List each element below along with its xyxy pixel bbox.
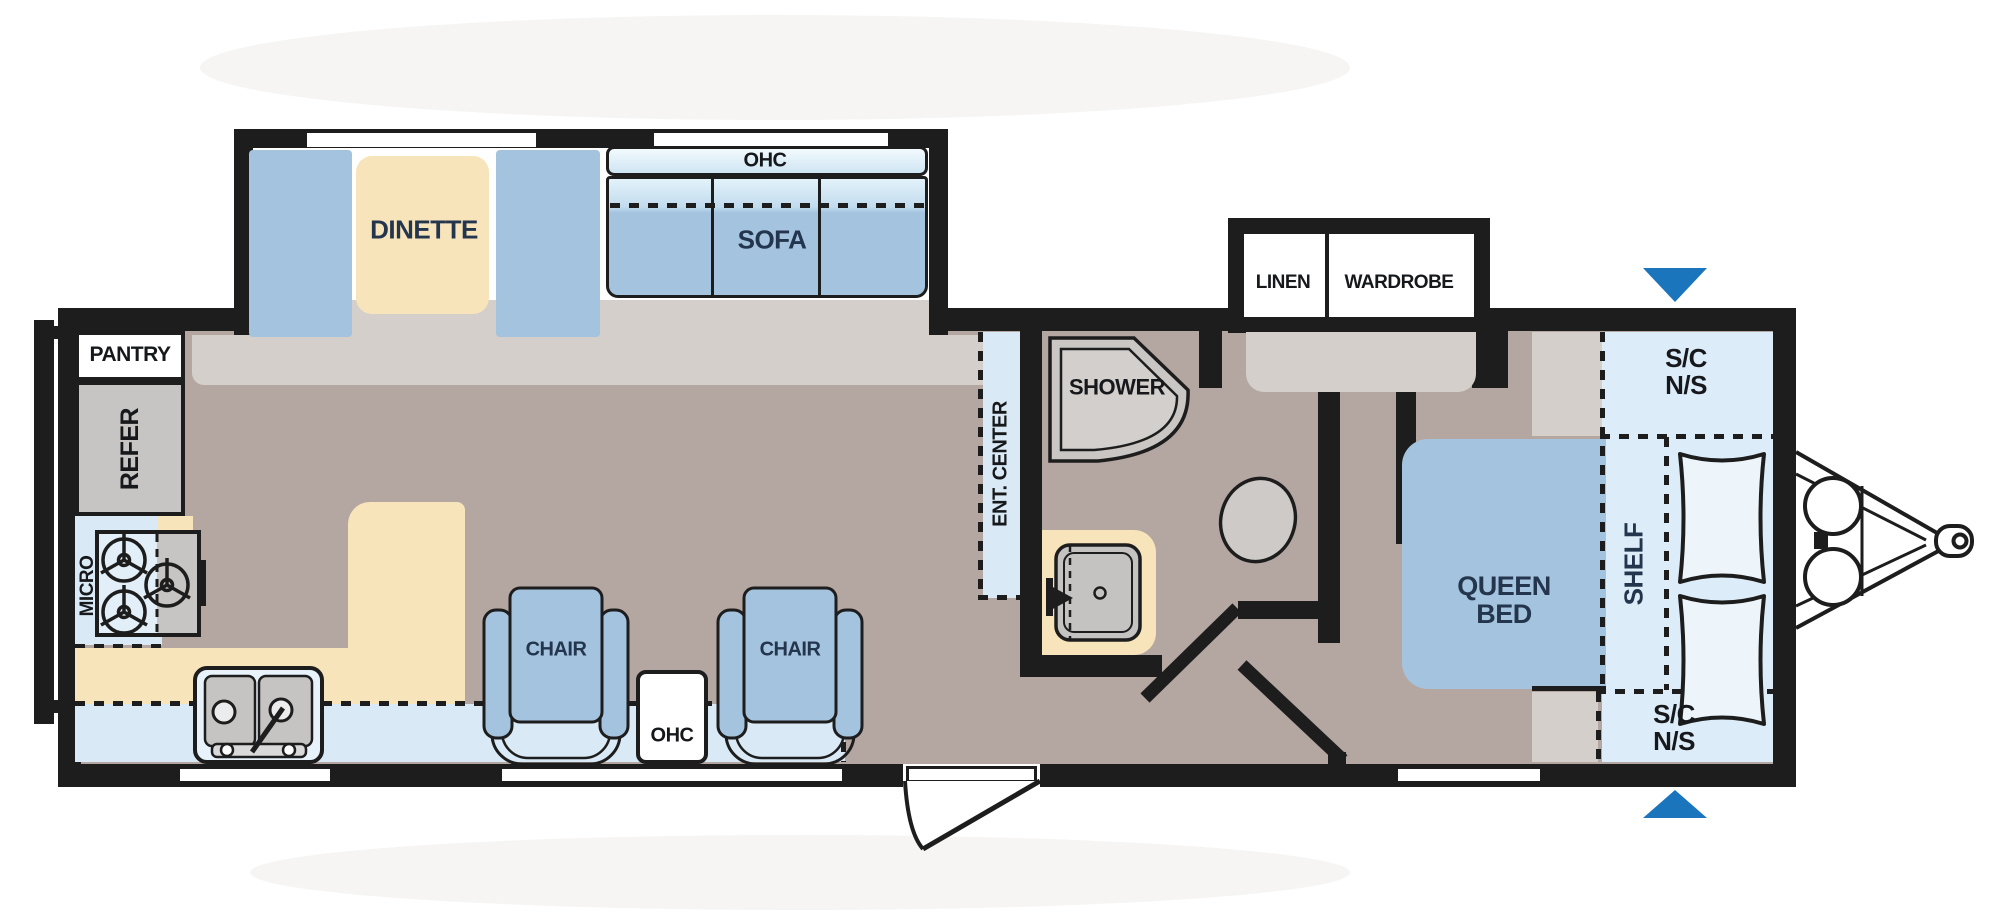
stove-cooktop-icon [97, 532, 206, 635]
ohc-bottom-label: OHC [651, 726, 694, 747]
toilet-icon [1211, 469, 1305, 570]
wardrobe-label: WARDROBE [1345, 273, 1454, 293]
sc-ns-top-line2: N/S [1665, 370, 1707, 400]
hitch-icon [1796, 452, 1972, 628]
dinette-label: DINETTE [370, 216, 478, 243]
sc-ns-top-label: S/C N/S [1665, 345, 1707, 399]
sc-ns-top-line1: S/C [1665, 343, 1707, 373]
sc-ns-bottom-line2: N/S [1653, 726, 1695, 756]
chair-right-icon [718, 588, 862, 764]
shower-label: SHOWER [1069, 377, 1165, 400]
bath-door-leaf [1145, 608, 1237, 698]
sc-ns-bottom-label: S/C N/S [1653, 701, 1695, 755]
pantry-label: PANTRY [90, 344, 171, 366]
refer-label: REFER [117, 408, 143, 490]
kitchen-sink-icon [195, 668, 322, 762]
chair-left-icon [484, 588, 628, 764]
shelf-label: SHELF [1620, 523, 1647, 606]
micro-label: MICRO [78, 556, 98, 617]
queen-bed-label: QUEEN BED [1457, 572, 1551, 628]
entry-door-swing [905, 781, 1040, 849]
queen-bed-label-line1: QUEEN [1457, 571, 1551, 601]
ent-center-label: ENT. CENTER [991, 401, 1012, 527]
pillow-icon [1680, 454, 1764, 724]
chair-right-label: CHAIR [760, 640, 821, 661]
bath-sink-icon [1046, 545, 1140, 640]
sc-ns-bottom-line1: S/C [1653, 699, 1695, 729]
sofa-label: SOFA [738, 226, 807, 253]
linen-label: LINEN [1256, 273, 1311, 293]
queen-bed-label-line2: BED [1476, 599, 1532, 629]
chair-left-label: CHAIR [526, 640, 587, 661]
floorplan-canvas: OHC DINETTE SOFA PANTRY REFER MICRO CHAI… [0, 0, 2000, 923]
bedroom-door-leaf [1242, 665, 1346, 766]
ohc-top-label: OHC [744, 151, 787, 172]
